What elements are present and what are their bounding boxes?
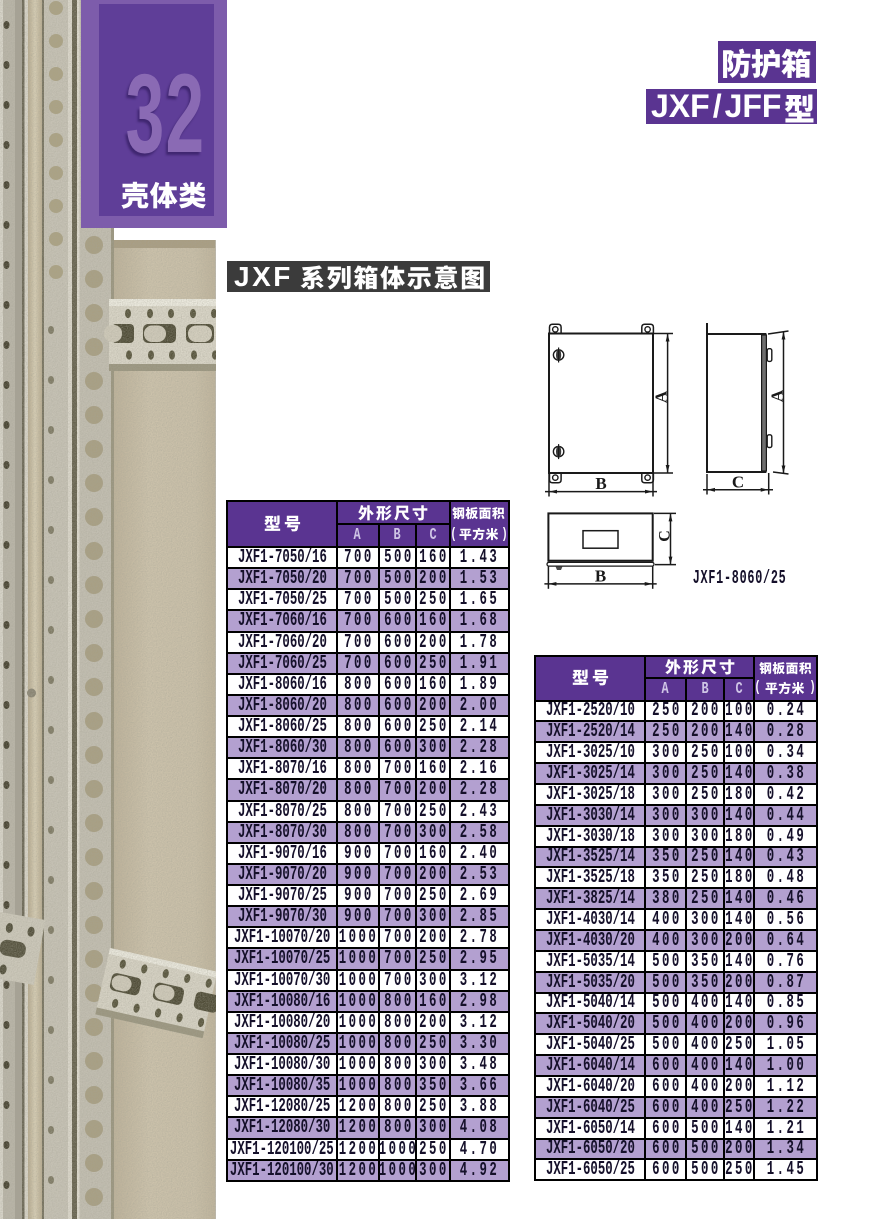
- svg-text:B: B: [595, 567, 606, 586]
- svg-text:C: C: [732, 473, 744, 492]
- svg-text:C: C: [657, 530, 674, 542]
- svg-text:A: A: [652, 390, 671, 403]
- svg-text:B: B: [595, 474, 606, 493]
- svg-text:A: A: [768, 389, 787, 402]
